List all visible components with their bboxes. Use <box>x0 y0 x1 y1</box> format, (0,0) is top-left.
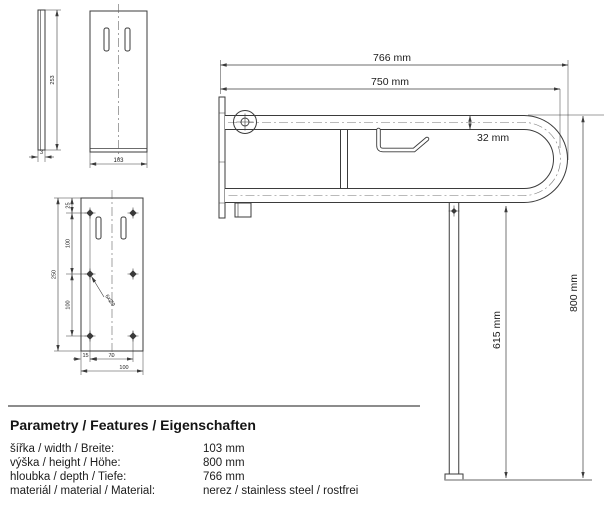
grab-bar-body <box>225 123 561 196</box>
spec-label: materiál / material / Material: <box>10 485 155 497</box>
spec-value: 103 mm <box>203 443 245 455</box>
tube-diameter-dim: 32 mm <box>477 132 509 144</box>
overall-length-dim: 766 mm <box>373 52 411 64</box>
plate-edge-offset-dim: 15 <box>82 353 88 359</box>
bar-centerline <box>228 123 561 196</box>
plate-lower-spacing-dim: 100 <box>66 300 72 309</box>
grab-bar-outline <box>225 123 561 196</box>
spec-label: výška / height / Höhe: <box>10 457 121 469</box>
paper-holder <box>379 130 428 150</box>
bar-length-dim: 750 mm <box>371 76 409 88</box>
wall-bracket <box>235 203 251 217</box>
spec-value: 800 mm <box>203 457 245 469</box>
leg-height-dim: 615 mm <box>491 311 503 349</box>
side-height-dim: 253 <box>50 75 56 84</box>
plate-overall-width-dim: 100 <box>119 365 128 371</box>
front-view <box>90 4 147 168</box>
spec-row-material: materiál / material / Material: nerez / … <box>10 485 450 499</box>
specs-title: Parametry / Features / Eigenschaften <box>10 417 256 433</box>
plate-hole-spacing-dim: 70 <box>108 353 114 359</box>
specs-section: Parametry / Features / Eigenschaften šíř… <box>0 400 612 511</box>
spec-label: šířka / width / Breite: <box>10 443 114 455</box>
mounting-plate-view <box>54 190 143 375</box>
section-divider <box>8 405 420 407</box>
front-width-dim: 103 <box>113 158 124 164</box>
wall-plate <box>219 97 225 218</box>
spec-row-depth: hloubka / depth / Tiefe: 766 mm <box>10 471 450 485</box>
side-thickness-dim: 3 <box>40 150 43 156</box>
plate-upper-spacing-dim: 100 <box>66 239 72 248</box>
assembly-height-dim: 800 mm <box>568 274 580 312</box>
spec-row-width: šířka / width / Breite: 103 mm <box>10 443 450 457</box>
plate-overall-height-dim: 250 <box>52 270 58 279</box>
spec-row-height: výška / height / Höhe: 800 mm <box>10 457 450 471</box>
spec-value: nerez / stainless steel / rostfrei <box>203 485 358 497</box>
plate-top-offset-dim: 25 <box>66 202 72 208</box>
side-view <box>29 10 61 162</box>
spec-value: 766 mm <box>203 471 245 483</box>
spec-label: hloubka / depth / Tiefe: <box>10 471 126 483</box>
